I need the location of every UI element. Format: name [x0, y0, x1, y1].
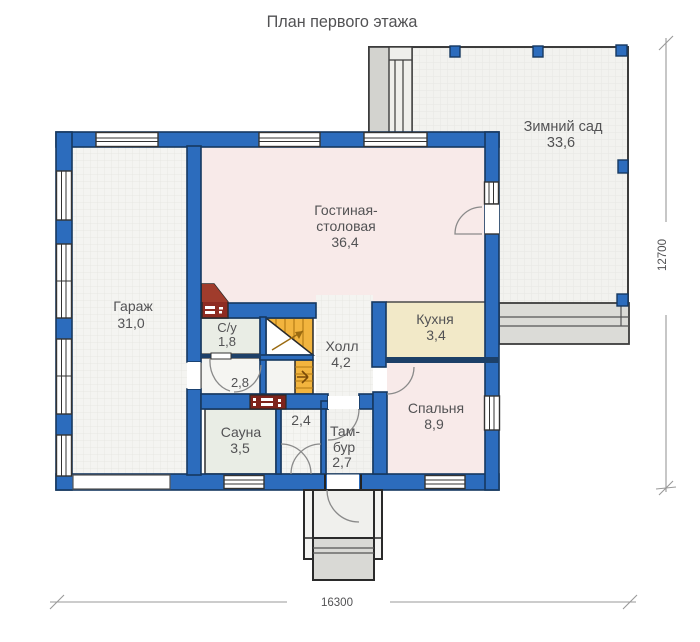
svg-text:8,9: 8,9 — [424, 416, 444, 432]
svg-text:бур: бур — [333, 439, 356, 455]
svg-text:2,4: 2,4 — [291, 412, 311, 428]
svg-text:36,4: 36,4 — [331, 234, 358, 250]
svg-text:12700: 12700 — [657, 239, 669, 271]
svg-text:Там-: Там- — [330, 423, 360, 439]
svg-text:Холл: Холл — [326, 338, 359, 354]
svg-text:План первого этажа: План первого этажа — [267, 13, 418, 31]
svg-text:3,4: 3,4 — [426, 327, 446, 343]
svg-text:Спальня: Спальня — [408, 400, 464, 416]
svg-text:столовая: столовая — [316, 218, 376, 234]
svg-text:33,6: 33,6 — [547, 135, 575, 151]
svg-text:Кухня: Кухня — [416, 311, 453, 327]
svg-text:16300: 16300 — [321, 597, 353, 609]
svg-text:Зимний сад: Зимний сад — [524, 119, 603, 135]
svg-text:3,5: 3,5 — [230, 440, 250, 456]
svg-text:31,0: 31,0 — [117, 315, 144, 331]
svg-text:Гараж: Гараж — [113, 298, 153, 314]
svg-text:1,8: 1,8 — [218, 334, 236, 349]
svg-text:Сауна: Сауна — [221, 424, 262, 440]
svg-text:4,2: 4,2 — [331, 354, 351, 370]
svg-text:2,7: 2,7 — [332, 454, 352, 470]
svg-text:2,8: 2,8 — [231, 375, 249, 390]
svg-text:С/у: С/у — [217, 320, 237, 335]
svg-text:Гостиная-: Гостиная- — [314, 202, 378, 218]
